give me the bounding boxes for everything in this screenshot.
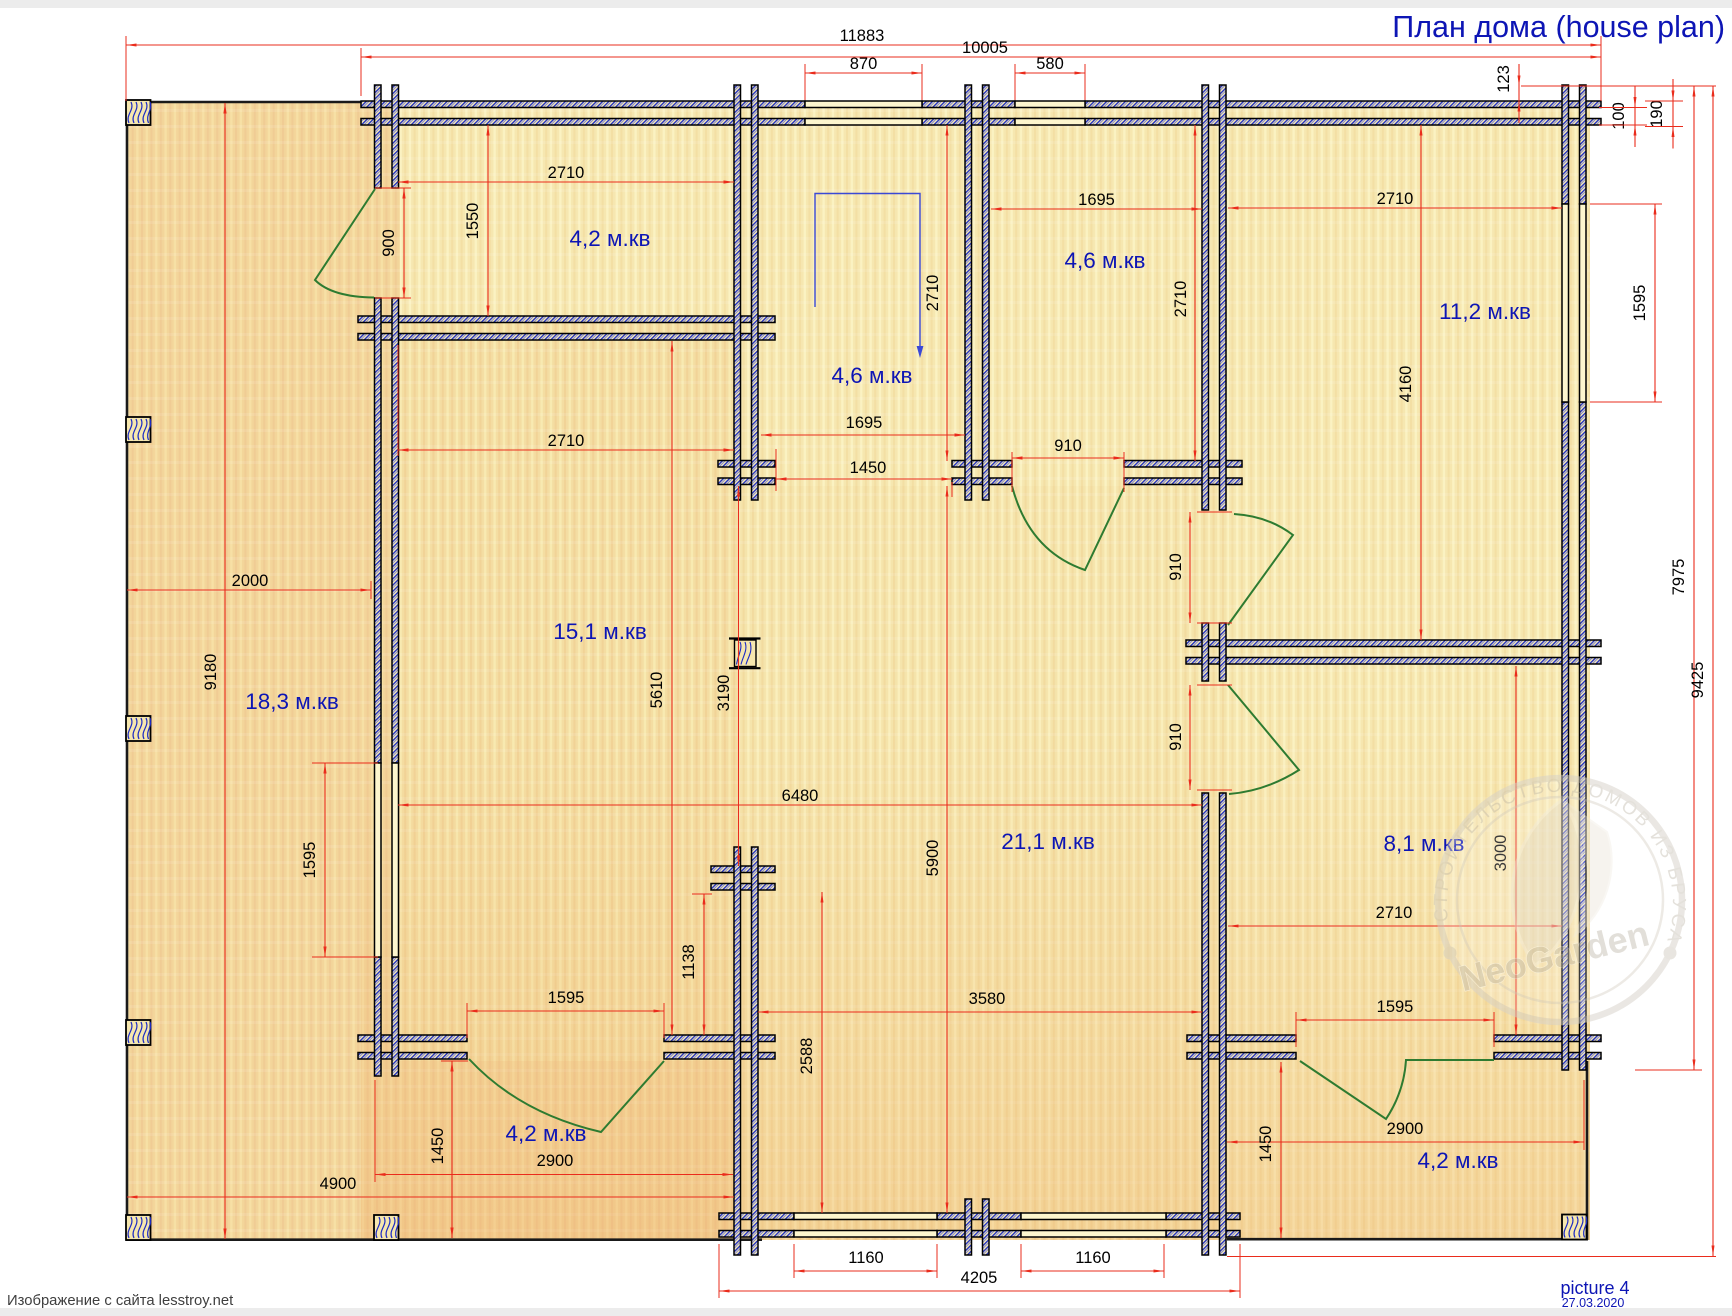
svg-text:1550: 1550 — [464, 203, 482, 240]
svg-text:2710: 2710 — [1377, 190, 1414, 208]
svg-text:План дома (house plan): План дома (house plan) — [1392, 10, 1725, 44]
svg-text:picture 4: picture 4 — [1560, 1278, 1629, 1298]
svg-text:27.03.2020: 27.03.2020 — [1562, 1296, 1625, 1310]
svg-text:3580: 3580 — [969, 990, 1006, 1008]
svg-text:Изображение с сайта lesstroy.n: Изображение с сайта lesstroy.net — [7, 1293, 233, 1309]
svg-text:15,1 м.кв: 15,1 м.кв — [553, 619, 647, 644]
svg-text:9425: 9425 — [1689, 662, 1707, 699]
svg-text:4,2 м.кв: 4,2 м.кв — [1417, 1148, 1498, 1173]
svg-text:2900: 2900 — [1387, 1120, 1424, 1138]
svg-text:123: 123 — [1495, 65, 1513, 93]
svg-text:2710: 2710 — [924, 275, 942, 312]
svg-text:1160: 1160 — [1075, 1249, 1110, 1267]
svg-text:5900: 5900 — [924, 840, 942, 877]
svg-text:1450: 1450 — [850, 459, 887, 477]
svg-text:1160: 1160 — [848, 1249, 883, 1267]
svg-text:4,6 м.кв: 4,6 м.кв — [1064, 248, 1145, 273]
svg-text:1695: 1695 — [846, 414, 883, 432]
svg-text:4205: 4205 — [961, 1269, 998, 1287]
svg-text:190: 190 — [1648, 100, 1666, 128]
svg-text:910: 910 — [1167, 723, 1185, 751]
svg-text:7975: 7975 — [1670, 559, 1688, 596]
svg-text:870: 870 — [850, 55, 878, 73]
svg-text:580: 580 — [1036, 55, 1064, 73]
svg-text:2710: 2710 — [1172, 281, 1190, 318]
svg-text:4,6 м.кв: 4,6 м.кв — [831, 363, 912, 388]
svg-text:9180: 9180 — [202, 654, 220, 691]
svg-text:4160: 4160 — [1397, 366, 1415, 403]
svg-text:10005: 10005 — [962, 39, 1008, 57]
svg-text:5610: 5610 — [648, 672, 666, 709]
svg-text:4,2 м.кв: 4,2 м.кв — [569, 226, 650, 251]
svg-text:1595: 1595 — [1377, 998, 1414, 1016]
svg-text:18,3 м.кв: 18,3 м.кв — [245, 689, 339, 714]
svg-text:21,1 м.кв: 21,1 м.кв — [1001, 829, 1095, 854]
svg-text:6480: 6480 — [782, 787, 819, 805]
svg-text:900: 900 — [380, 229, 398, 257]
svg-text:100: 100 — [1610, 102, 1628, 130]
svg-text:910: 910 — [1054, 437, 1082, 455]
svg-text:2710: 2710 — [548, 432, 585, 450]
svg-text:2588: 2588 — [798, 1038, 816, 1075]
svg-text:1450: 1450 — [1257, 1126, 1275, 1163]
svg-text:1595: 1595 — [1631, 285, 1649, 322]
svg-text:3190: 3190 — [715, 675, 733, 712]
svg-text:1595: 1595 — [301, 842, 319, 879]
svg-text:4900: 4900 — [320, 1175, 357, 1193]
svg-text:11,2 м.кв: 11,2 м.кв — [1439, 299, 1531, 324]
svg-text:1595: 1595 — [548, 989, 585, 1007]
svg-text:1138: 1138 — [680, 944, 698, 979]
svg-text:1695: 1695 — [1078, 191, 1115, 209]
svg-text:2000: 2000 — [232, 572, 269, 590]
svg-text:2900: 2900 — [537, 1152, 574, 1170]
svg-text:2710: 2710 — [548, 164, 585, 182]
svg-text:2710: 2710 — [1376, 904, 1413, 922]
svg-text:4,2 м.кв: 4,2 м.кв — [505, 1121, 586, 1146]
svg-text:910: 910 — [1167, 553, 1185, 581]
svg-text:11883: 11883 — [840, 27, 885, 45]
svg-text:1450: 1450 — [429, 1128, 447, 1165]
